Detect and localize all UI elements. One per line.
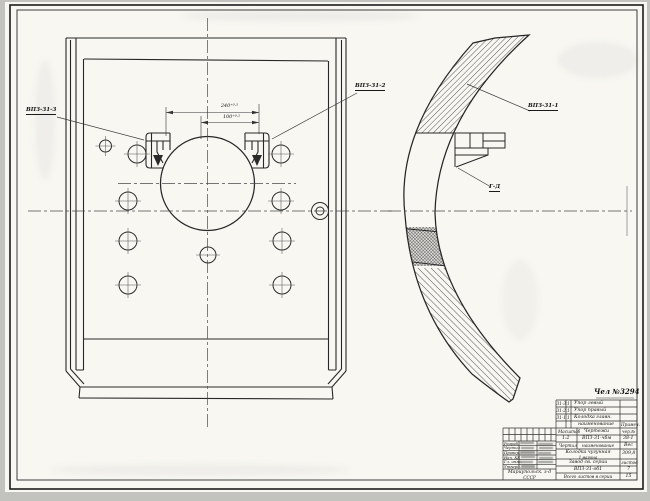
part-name: Упор левый (574, 402, 603, 407)
parts-header-note: Примеч. (621, 423, 640, 427)
tb-cell: 15 (620, 475, 637, 480)
dimension-inner-label: 100⁺⁰·² (223, 116, 240, 121)
drawing-lines (0, 0, 650, 501)
bolt-holes (100, 140, 329, 294)
signature-smudge (538, 443, 553, 445)
tb-cell: чер.№ (622, 430, 635, 434)
tb-cell: листов (621, 461, 638, 465)
part-num: 31-3 (557, 402, 566, 406)
tb-cell: Завод св. серии (558, 461, 618, 466)
tb-cell: наименование (582, 444, 614, 448)
hole-centermarks (96, 136, 296, 298)
tb-cell: ВПЗ-31-об1 (558, 468, 618, 473)
signature-smudge (539, 447, 553, 449)
part-name: Колодка главн. (574, 416, 612, 421)
part-num: 31-1 (557, 416, 566, 420)
callout-front-left: ВПЗ-31-3 (26, 108, 56, 115)
tb-cell: 1:2 (562, 437, 570, 442)
tb-cell: Всего листов в серии (558, 475, 618, 479)
part-qty: 1 (567, 416, 570, 420)
signature-smudge (521, 465, 535, 467)
tb-cell: ВПЗ-31-чбм (582, 437, 611, 442)
signature-smudge (520, 451, 535, 453)
signature-smudge (521, 456, 535, 458)
callout-side-view: ВПЗ-31-1 (528, 104, 558, 111)
tb-cell: 7 (620, 468, 637, 473)
signature-smudge (539, 457, 553, 459)
centerlines (28, 18, 392, 428)
tb-cell: 309,8 (622, 452, 635, 457)
tb-cell: Чертежи (584, 430, 609, 435)
part-qty: 1 (567, 402, 570, 406)
callout-front-right: ВПЗ-31-2 (355, 84, 385, 91)
border-frame (10, 5, 643, 489)
tb-cell: Масштаб (558, 430, 580, 434)
signature-smudge (520, 442, 534, 444)
section-mark-label: Г-Д (489, 185, 500, 192)
signature-smudge (520, 461, 533, 463)
tb-cell: Вес (624, 444, 633, 449)
scanned-drawing-sheet: ВПЗ-31-3 ВПЗ-31-2 ВПЗ-31-1 Г-Д 240⁺⁰·⁵ 1… (0, 0, 650, 501)
tb-cell: 38-1 (623, 437, 634, 442)
stamp-row: Утверд. (504, 465, 521, 469)
shoe-hatching (388, 26, 543, 408)
tb-cell: Чертил (559, 444, 577, 448)
sheet-number-note: Чел №3294 (594, 388, 640, 395)
part-name: Упор правый (574, 409, 606, 414)
signature-smudge (538, 452, 551, 454)
org-country: СССР (504, 476, 555, 480)
parts-header-name: наименование (578, 423, 614, 428)
part-num: 31-2 (557, 409, 566, 413)
side-view (388, 26, 632, 408)
part-qty: 1 (567, 409, 570, 413)
signature-smudge (521, 447, 534, 449)
dimension-outer-label: 240⁺⁰·⁵ (221, 105, 238, 110)
signature-smudge (538, 461, 553, 463)
front-view (66, 38, 346, 399)
